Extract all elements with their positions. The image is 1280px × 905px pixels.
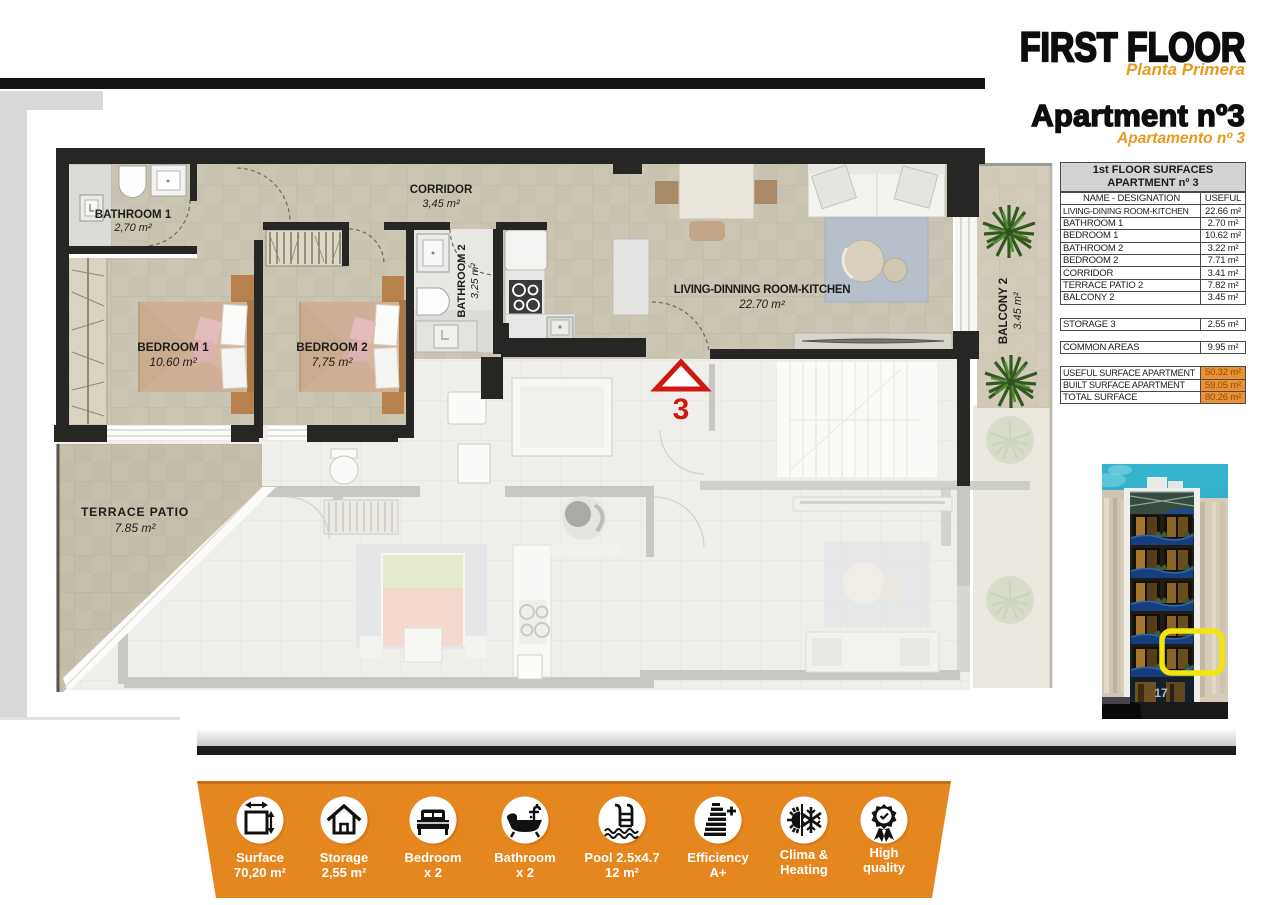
svg-text:Storage: Storage [320,850,368,865]
svg-text:Heating: Heating [780,862,828,877]
svg-text:Pool 2.5x4.7: Pool 2.5x4.7 [584,850,659,865]
svg-text:BATHROOM 2: BATHROOM 2 [456,244,468,317]
svg-text:12 m²: 12 m² [605,865,640,880]
svg-text:BALCONY 2: BALCONY 2 [998,278,1010,344]
svg-text:quality: quality [863,860,906,875]
svg-text:CORRIDOR: CORRIDOR [410,184,473,196]
svg-text:17: 17 [1154,686,1168,700]
svg-text:Surface: Surface [236,850,284,865]
svg-text:x 2: x 2 [516,865,534,880]
svg-text:2,70 m²: 2,70 m² [113,222,152,234]
svg-text:TERRACE PATIO: TERRACE PATIO [81,505,189,519]
svg-text:High: High [870,845,899,860]
svg-text:A+: A+ [710,865,727,880]
svg-text:70,20 m²: 70,20 m² [234,865,287,880]
svg-text:7.85 m²: 7.85 m² [115,521,157,535]
svg-text:Bathroom: Bathroom [494,850,555,865]
svg-text:BATHROOM 1: BATHROOM 1 [95,209,172,221]
svg-text:3.45 m²: 3.45 m² [1012,292,1024,330]
svg-text:3,25 m²: 3,25 m² [469,263,481,299]
svg-text:10.60 m²: 10.60 m² [149,355,197,369]
svg-text:x 2: x 2 [424,865,442,880]
svg-text:BEDROOM 1: BEDROOM 1 [137,340,209,354]
svg-text:22.70 m²: 22.70 m² [738,299,786,311]
svg-text:7,75 m²: 7,75 m² [312,355,354,369]
svg-text:Clima &: Clima & [780,847,828,862]
svg-text:Efficiency: Efficiency [687,850,749,865]
svg-text:2,55 m²: 2,55 m² [322,865,367,880]
svg-text:Bedroom: Bedroom [404,850,461,865]
svg-text:3: 3 [673,393,690,426]
svg-text:3,45 m²: 3,45 m² [422,198,460,210]
svg-text:BEDROOM 2: BEDROOM 2 [296,340,368,354]
svg-text:LIVING-DINNING ROOM-KITCHEN: LIVING-DINNING ROOM-KITCHEN [674,284,851,296]
